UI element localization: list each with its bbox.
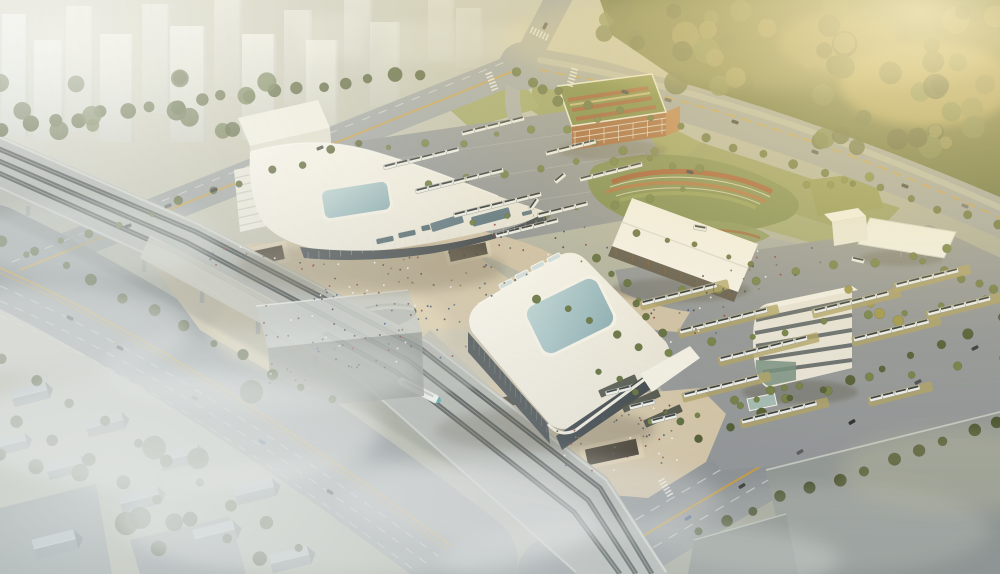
- sun-glow: [0, 0, 1000, 574]
- architectural-rendering: Aerial architectural rendering of an int…: [0, 0, 1000, 574]
- atmosphere: [0, 0, 1000, 574]
- rendering-canvas: [0, 0, 1000, 574]
